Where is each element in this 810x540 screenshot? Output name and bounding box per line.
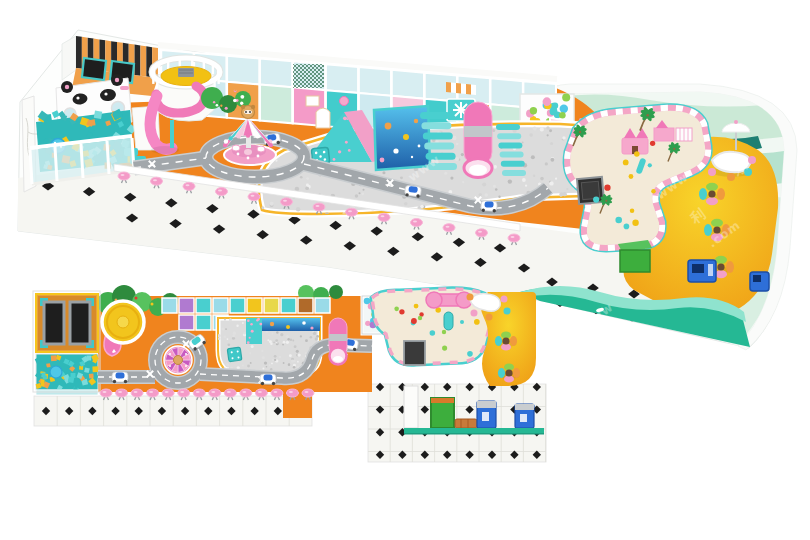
roundabout-carousel (164, 346, 192, 374)
storage-box (431, 398, 454, 428)
drawing-board (577, 177, 604, 204)
trampoline (44, 302, 64, 344)
dice-cube (227, 347, 242, 362)
cabinet (404, 386, 418, 428)
arcade-machine (750, 272, 769, 291)
trampoline (70, 302, 90, 344)
arcade-machine (688, 260, 716, 282)
water-machine (477, 401, 496, 428)
trampoline-room (36, 294, 98, 352)
water-machine (515, 404, 534, 428)
trampoline (82, 58, 106, 80)
playground-render: www乐www利.comwww (0, 0, 810, 540)
shoe-rack (455, 419, 477, 428)
tube-slide (464, 102, 492, 178)
storage-box (618, 240, 652, 272)
tube-slide (329, 318, 347, 365)
plan-view (33, 285, 546, 462)
foam-cube-pit (35, 354, 99, 393)
chalkboard (404, 341, 425, 365)
baseboard-trim (404, 428, 544, 433)
